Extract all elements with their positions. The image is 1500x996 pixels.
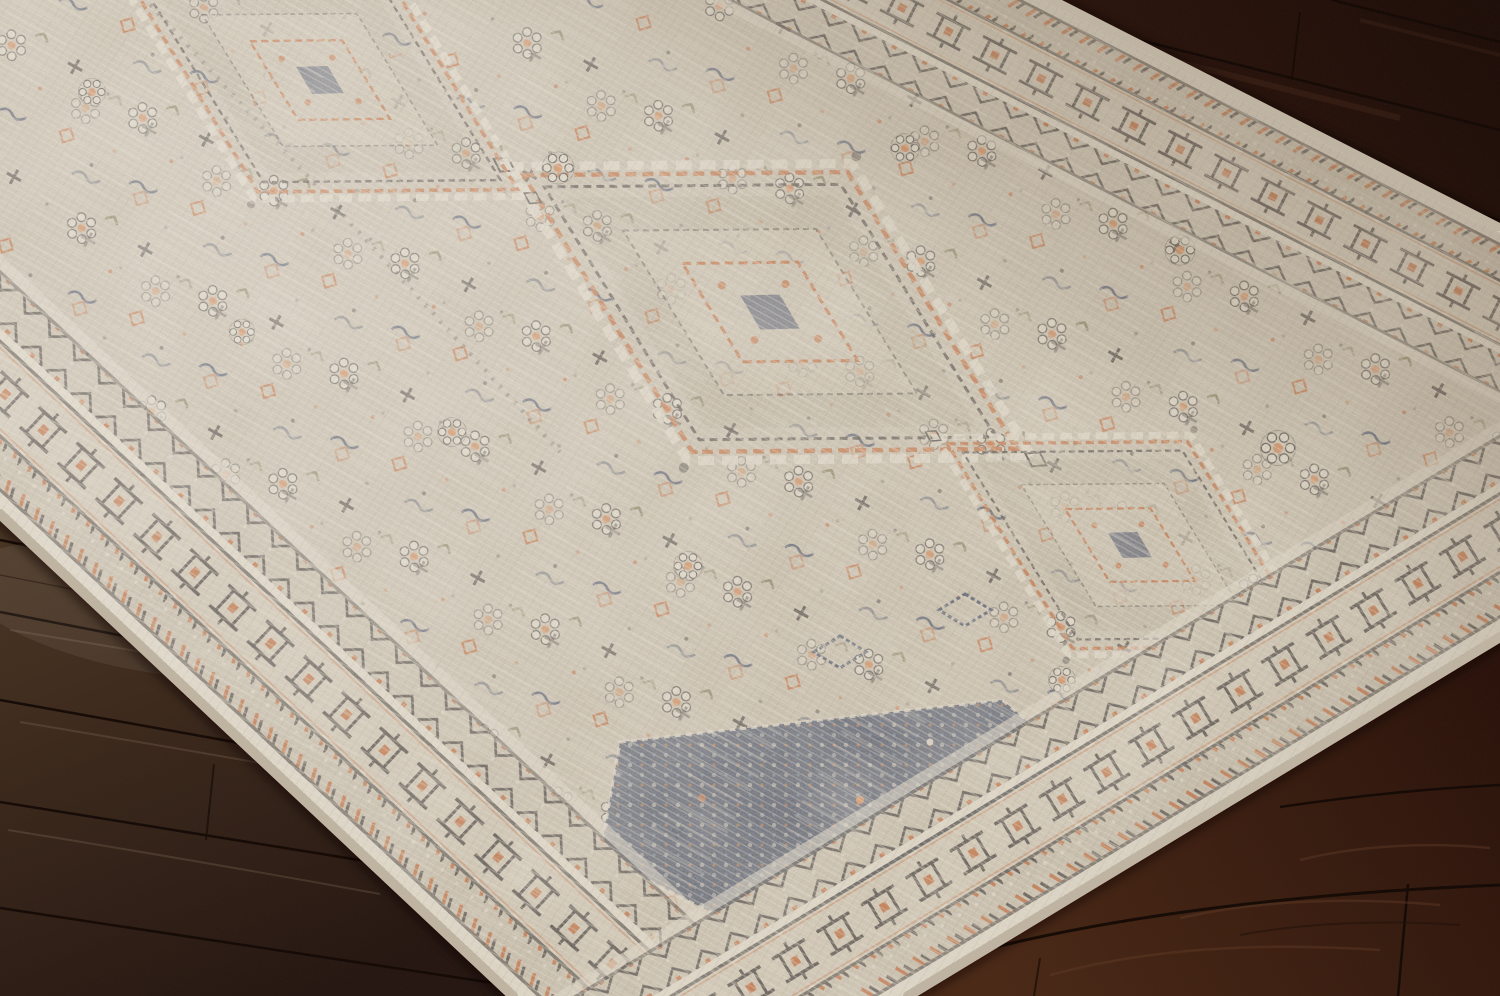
photo-canvas: Angled close view of a distressed vintag… (0, 0, 1500, 996)
scene-rug-on-floor: Angled close view of a distressed vintag… (0, 0, 1500, 996)
